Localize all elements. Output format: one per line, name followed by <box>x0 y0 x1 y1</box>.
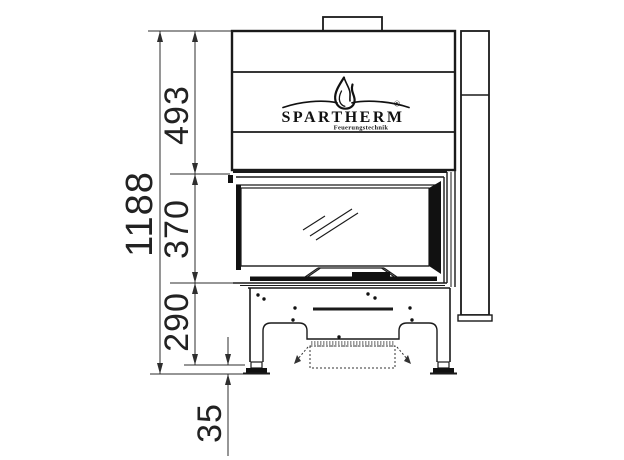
right-foot-plate <box>433 368 454 373</box>
fireplace-technical-drawing: 1188 493 370 290 35 SPARTHERM ® Feuerung… <box>0 0 624 460</box>
screw-dots <box>256 292 413 338</box>
glass-frame-left <box>236 185 241 270</box>
brand-tagline: Feuerungstechnik <box>334 125 389 132</box>
glass-frame-corner-right <box>429 181 441 274</box>
air-inlet-dashed-box <box>294 342 411 368</box>
glass-pane <box>241 188 429 266</box>
registered-trademark-symbol: ® <box>394 100 400 109</box>
dimension-label-foot-clearance: 35 <box>193 403 227 443</box>
right-foot-stem <box>438 362 449 368</box>
air-control-lever <box>305 268 397 277</box>
door-hinge-mark <box>228 175 233 183</box>
dimension-label-total-height: 1188 <box>121 171 159 257</box>
dimension-label-glass-section: 370 <box>160 199 194 259</box>
dimension-label-upper-body: 493 <box>160 85 194 145</box>
side-panel <box>458 31 492 321</box>
line-art-svg <box>0 0 624 460</box>
dimension-label-base-section: 290 <box>160 292 194 352</box>
firebox-bottom-band <box>250 277 437 282</box>
flue-stub <box>323 17 382 32</box>
firebox <box>233 172 447 283</box>
left-foot-plate <box>246 368 267 373</box>
left-foot-stem <box>251 362 262 368</box>
base-frame <box>240 286 450 363</box>
